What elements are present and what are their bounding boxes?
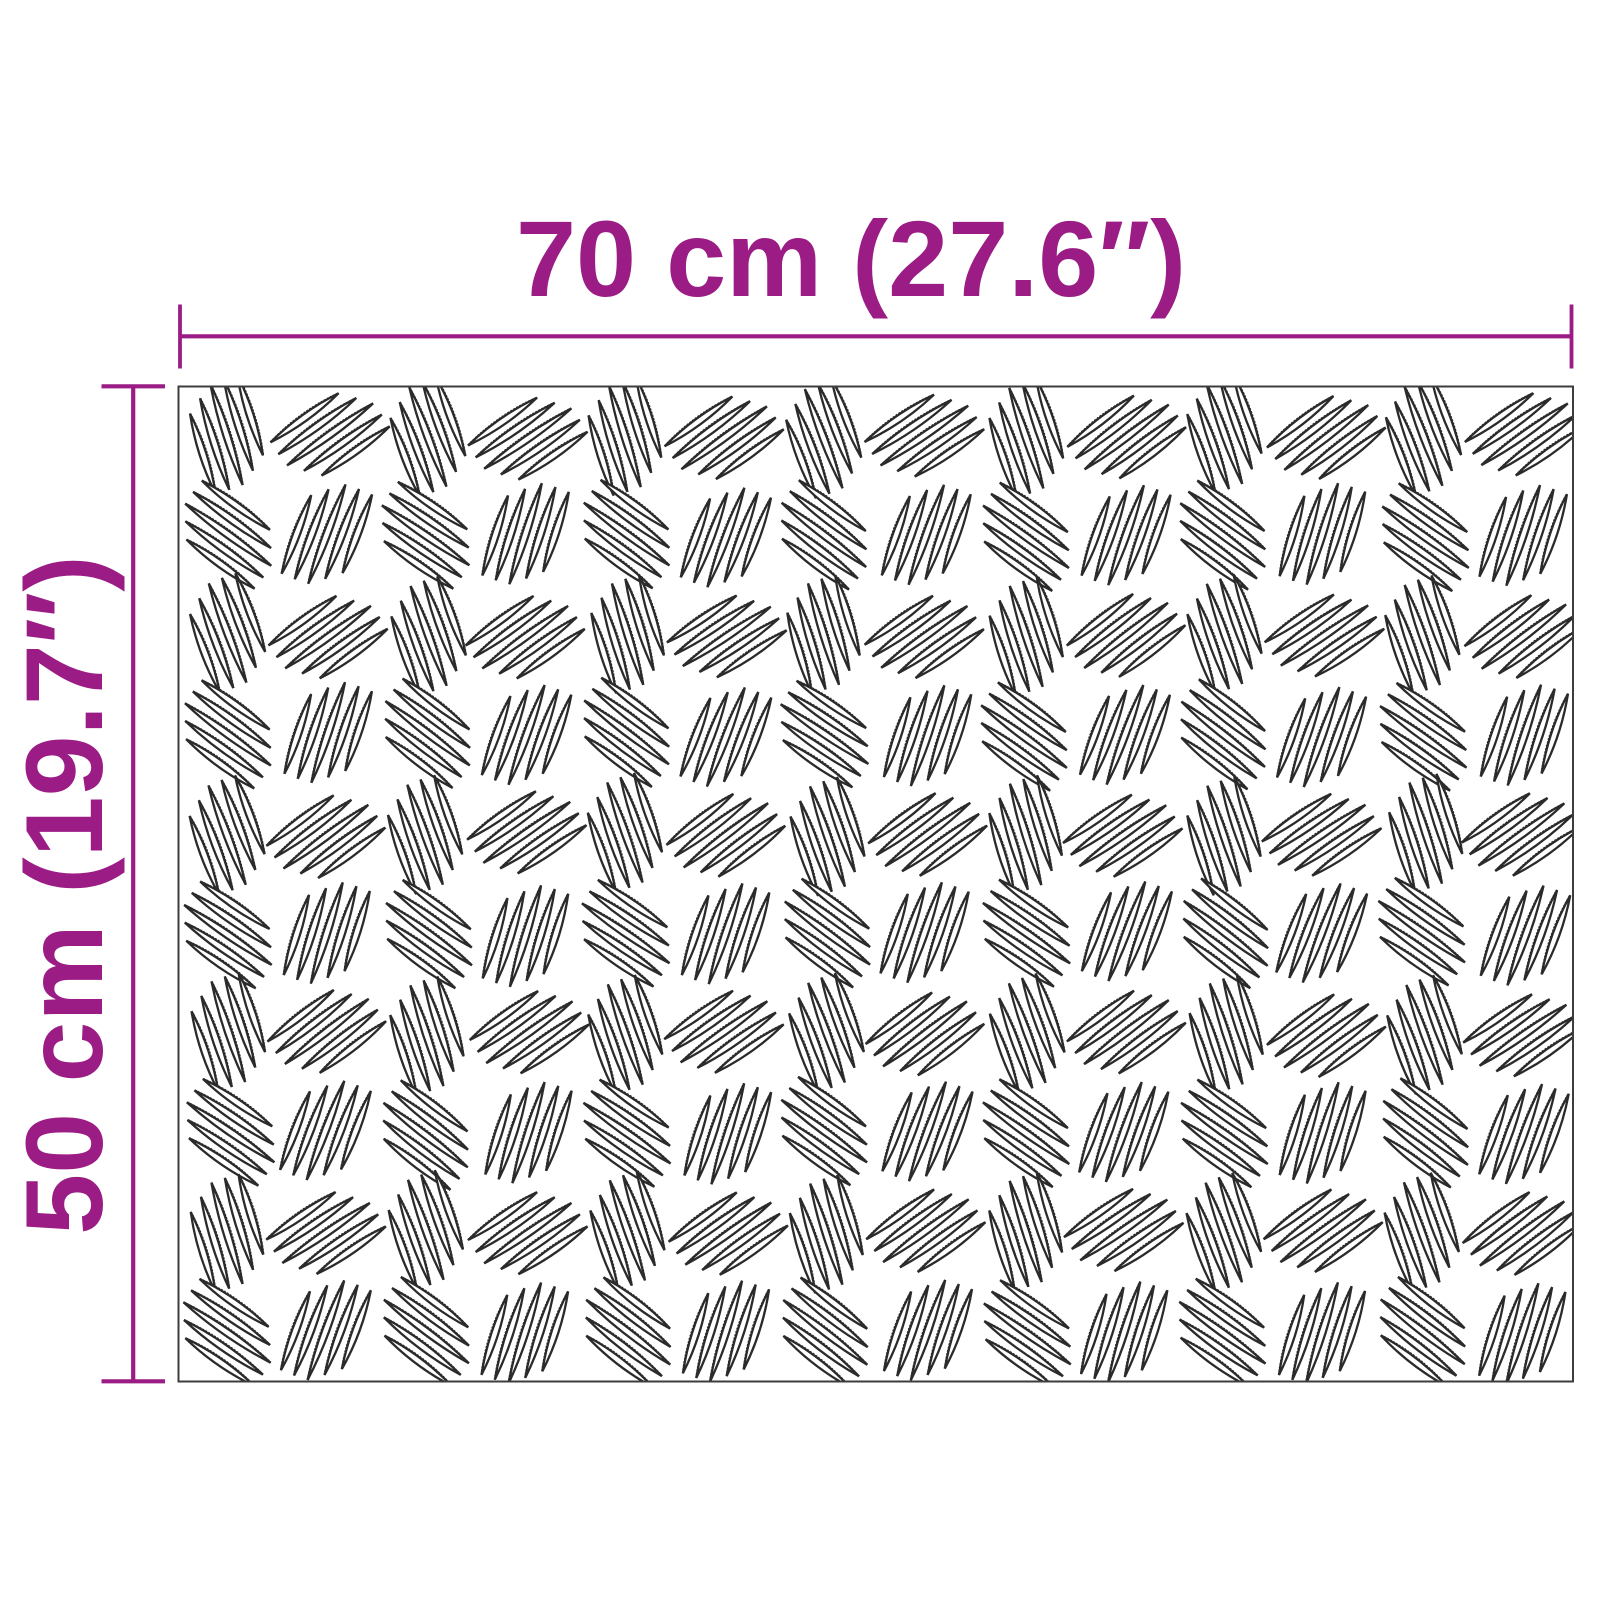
svg-text:50 cm (19.7″): 50 cm (19.7″) (4, 555, 126, 1234)
svg-text:70 cm (27.6″): 70 cm (27.6″) (516, 198, 1186, 319)
